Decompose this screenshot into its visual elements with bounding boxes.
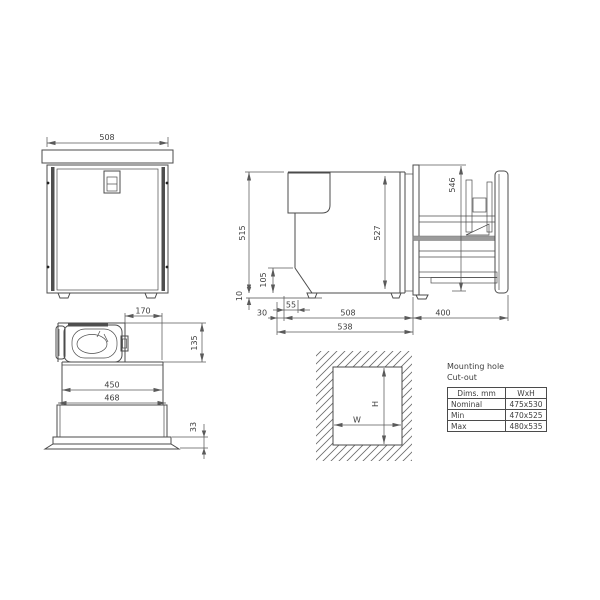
front-left-wall (51, 167, 55, 291)
mounting-flange (413, 165, 419, 295)
support-wedge (466, 224, 489, 235)
drawer-block (473, 198, 486, 212)
front-view: 508 (42, 133, 173, 298)
dim-drawer-extension: 400 (435, 309, 450, 318)
table-row: Max 480x535 (448, 421, 547, 432)
row-value: 480x535 (506, 421, 547, 432)
screw-dot (166, 266, 169, 269)
dim-flange-height: 33 (189, 422, 198, 432)
telescopic-slide-inner (431, 278, 497, 284)
table-row: Nominal 475x530 (448, 399, 547, 410)
row-label: Max (448, 421, 506, 432)
col-header-wxh: WxH (506, 388, 547, 399)
dim-compressor-offset: 170 (135, 307, 150, 316)
front-top-flange (42, 150, 173, 163)
screw-dot (166, 182, 169, 185)
base-tray (45, 444, 179, 449)
drawing-svg: 508 (0, 0, 600, 600)
row-value: 475x530 (506, 399, 547, 410)
table-row: Min 470x525 (448, 410, 547, 421)
cutout-dimensions-table: Dims. mm WxH Nominal 475x530 Min 470x525… (447, 387, 547, 432)
cutout-view: H W (316, 351, 412, 461)
cutout-width-label: W (353, 416, 361, 425)
arrowhead (202, 448, 206, 455)
arrowhead (202, 431, 206, 438)
flange-foot (416, 295, 428, 299)
side-foot-front (307, 293, 317, 298)
arrowhead (278, 308, 285, 312)
base-band (53, 437, 171, 444)
arrowhead (298, 308, 305, 312)
top-view: 170 135 450 468 (45, 307, 208, 460)
table-header-row: Dims. mm WxH (448, 388, 547, 399)
side-bottom-chamfer (295, 268, 312, 293)
compressor-housing (64, 325, 122, 362)
mounting-hole-panel: Mounting hole Cut-out Dims. mm WxH Nomin… (447, 361, 547, 432)
drawer-bracket (466, 180, 472, 232)
flange-box (57, 405, 167, 437)
dim-interior-height: 527 (373, 225, 382, 240)
dim-body-depth: 508 (340, 309, 355, 318)
dim-front-width: 508 (99, 133, 114, 142)
dim-front-offset: 30 (257, 309, 267, 318)
screw-dot (47, 182, 50, 185)
dim-inner-width: 450 (104, 381, 119, 390)
side-view: 515 105 10 527 546 55 30 508 (235, 165, 508, 335)
cutout-height-label: H (371, 401, 380, 407)
cutout-opening (333, 367, 402, 445)
row-value: 470x525 (506, 410, 547, 421)
compressor-pot (77, 335, 107, 354)
table-title-line1: Mounting hole (447, 361, 547, 372)
arrowhead (247, 298, 251, 305)
dim-outer-width: 468 (104, 394, 119, 403)
front-foot-right (145, 293, 157, 298)
dim-bottom-inset: 105 (259, 272, 268, 287)
dim-side-height: 515 (238, 225, 247, 240)
dim-compressor-depth: 135 (190, 335, 199, 350)
front-right-wall (162, 167, 166, 291)
front-door-panel (57, 169, 158, 290)
screw-dot (47, 266, 50, 269)
row-label: Min (448, 410, 506, 421)
table-title-line2: Cut-out (447, 372, 547, 383)
dim-overall-depth: 538 (337, 323, 352, 332)
technical-drawing-page: 508 (0, 0, 600, 600)
slide-gray-bar (413, 236, 495, 241)
side-foot-back (391, 293, 401, 298)
arrowhead (271, 316, 278, 320)
dim-foot-offset: 55 (286, 301, 296, 310)
telescopic-slide-outer (419, 272, 497, 278)
row-label: Nominal (448, 399, 506, 410)
front-latch-outer (104, 171, 120, 193)
condenser-grid (288, 173, 330, 213)
col-header-dims: Dims. mm (448, 388, 506, 399)
front-foot-left (58, 293, 70, 298)
dim-foot-height: 10 (235, 291, 244, 301)
dim-panel-height: 546 (448, 177, 457, 192)
arrowhead (247, 287, 251, 293)
compressor-top-bar (68, 324, 108, 327)
